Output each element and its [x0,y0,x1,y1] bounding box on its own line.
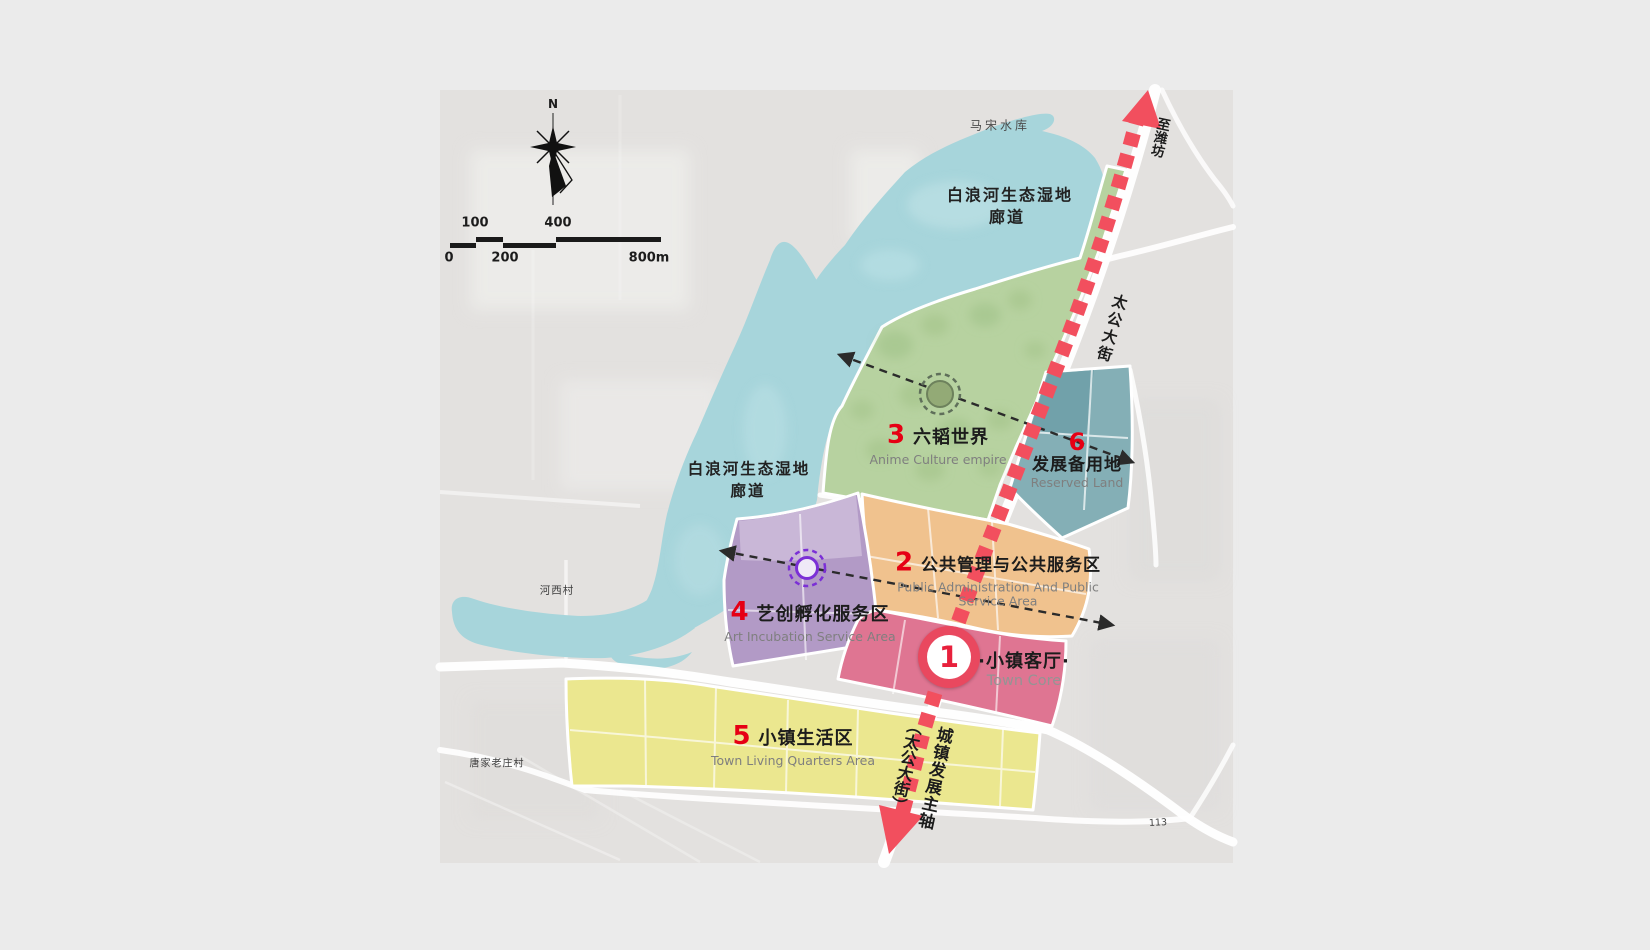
zone-2-subtitle-line1: Public Administration And Public [895,581,1101,595]
label-wetland-north-line1: 白浪河生态湿地 [947,183,1073,206]
zone-5-subtitle: Town Living Quarters Area [711,754,875,768]
zone-4-title: 艺创孵化服务区 [757,603,890,626]
scale-label-200: 200 [491,251,518,266]
zone-6-number: 6 [1031,430,1124,454]
zone-6-label: 6 发展备用地 Reserved Land [1031,430,1124,490]
zone-2-label: 2 公共管理与公共服务区 Public Administration And P… [895,547,1101,610]
scale-label-0: 0 [444,251,453,266]
zone-2-number: 2 [895,547,913,581]
planning-map [0,0,1650,950]
zone-1-number: 1 [939,640,959,674]
scale-label-800m: 800m [629,251,670,266]
zone-5-label: 5 小镇生活区 Town Living Quarters Area [711,720,875,768]
label-village-tangjialaozhuang: 唐家老庄村 [470,755,525,770]
zone-5-number: 5 [732,720,750,754]
zone-1-subtitle: Town Core [978,673,1070,690]
label-reservoir: 马宋水库 [970,117,1030,134]
zone-3-number: 3 [887,419,905,453]
planning-map-page: N 100 400 0 200 800m 马宋水库 白浪河生态湿地 廊道 白浪河… [0,0,1650,950]
label-wetland-west-line2: 廊道 [730,480,765,502]
zone-6-subtitle: Reserved Land [1031,476,1124,490]
label-village-hexi: 河西村 [540,583,575,598]
compass-north-label: N [548,97,558,111]
zone-3-label: 3 六韬世界 Anime Culture empire [869,419,1006,467]
scale-label-100: 100 [461,216,488,231]
zone-5-title: 小镇生活区 [759,727,854,750]
label-wetland-north-line2: 廊道 [989,205,1025,228]
zone-1-title: ·小镇客厅· [978,650,1070,673]
scale-label-400: 400 [544,216,571,231]
label-wetland-west-line1: 白浪河生态湿地 [688,458,811,480]
zone-4-subtitle: Art Incubation Service Area [724,630,895,644]
label-road-113: 113 [1149,817,1168,829]
zone-2-title: 公共管理与公共服务区 [921,555,1101,577]
zone-4-number: 4 [730,596,748,630]
zone-3-title: 六韬世界 [913,426,989,449]
zone-4-label: 4 艺创孵化服务区 Art Incubation Service Area [724,596,895,644]
zone-1-marker: 1 [918,626,980,688]
zone-1-label: ·小镇客厅· Town Core [978,650,1070,690]
zone-3-subtitle: Anime Culture empire [869,453,1006,467]
zone-6-title: 发展备用地 [1031,454,1124,476]
zone-2-subtitle-line2: Service Area [895,595,1101,609]
